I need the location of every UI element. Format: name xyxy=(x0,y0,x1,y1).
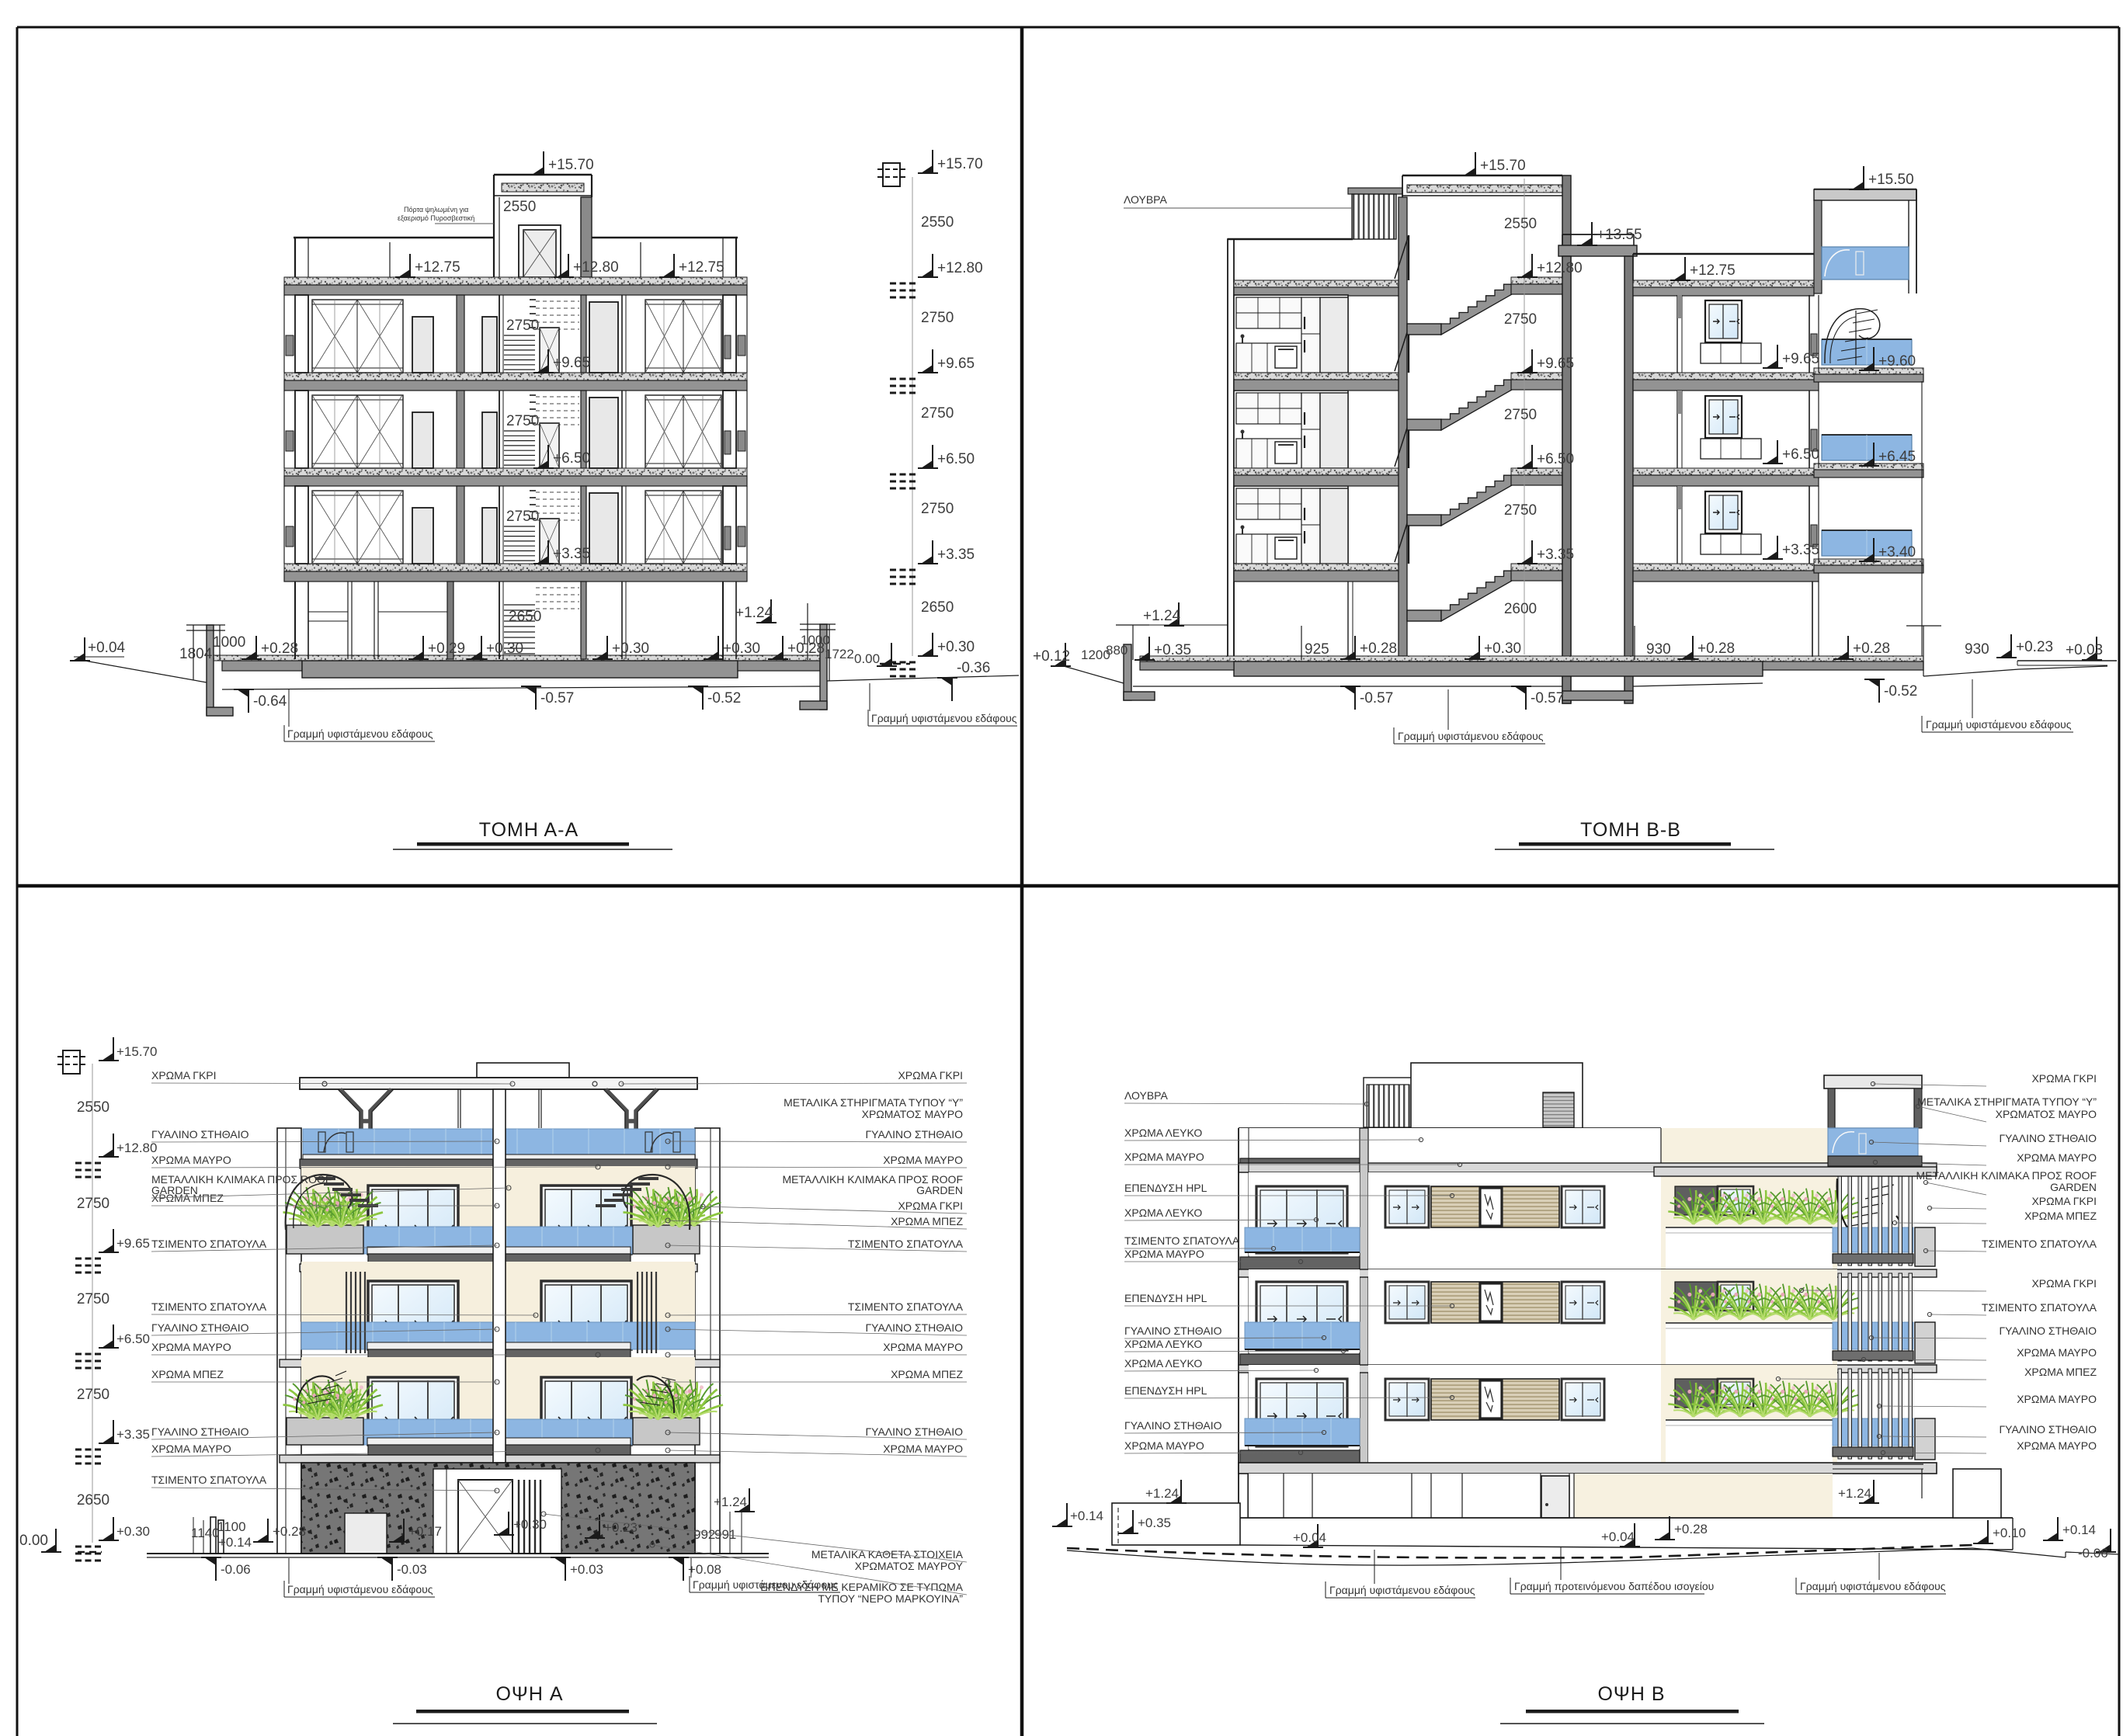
svg-text:1804: 1804 xyxy=(179,646,213,662)
svg-text:-0.57: -0.57 xyxy=(1531,690,1564,707)
svg-text:+0.08: +0.08 xyxy=(688,1562,721,1577)
svg-text:ΜΕΤΑΛΙΚΑ ΣΤΗΡΙΓΜΑΤΑ ΤΥΠΟΥ “Υ”: ΜΕΤΑΛΙΚΑ ΣΤΗΡΙΓΜΑΤΑ ΤΥΠΟΥ “Υ” xyxy=(784,1096,963,1109)
svg-text:ΧΡΩΜΑ ΜΑΥΡΟ: ΧΡΩΜΑ ΜΑΥΡΟ xyxy=(883,1443,963,1455)
svg-text:+0.03: +0.03 xyxy=(570,1562,603,1577)
svg-text:Γραμμή υφιστάμενου εδάφους: Γραμμή υφιστάμενου εδάφους xyxy=(287,1583,433,1595)
svg-text:ΓΥΑΛΙΝΟ ΣΤΗΘΑΙΟ: ΓΥΑΛΙΝΟ ΣΤΗΘΑΙΟ xyxy=(1999,1325,2097,1337)
svg-text:-0.64: -0.64 xyxy=(253,693,287,710)
svg-text:ΧΡΩΜΑ ΜΑΥΡΟ: ΧΡΩΜΑ ΜΑΥΡΟ xyxy=(2017,1151,2097,1164)
svg-text:ΓΥΑΛΙΝΟ ΣΤΗΘΑΙΟ: ΓΥΑΛΙΝΟ ΣΤΗΘΑΙΟ xyxy=(865,1128,963,1141)
svg-text:+1.24: +1.24 xyxy=(714,1495,747,1509)
svg-text:ΕΠΕΝΔΥΣΗ HPL: ΕΠΕΝΔΥΣΗ HPL xyxy=(1124,1292,1207,1304)
svg-text:Πόρτα ψηλωμένη για: Πόρτα ψηλωμένη για xyxy=(404,206,468,214)
svg-text:+0.03: +0.03 xyxy=(2066,642,2103,658)
svg-text:1000: 1000 xyxy=(801,633,830,648)
svg-text:Γραμμή υφιστάμενου εδάφους: Γραμμή υφιστάμενου εδάφους xyxy=(1926,718,2072,731)
svg-text:ΧΡΩΜΑ ΛΕΥΚΟ: ΧΡΩΜΑ ΛΕΥΚΟ xyxy=(1124,1207,1202,1219)
svg-text:ΤΣΙΜΕΝΤΟ ΣΠΑΤΟΥΛΑ: ΤΣΙΜΕΝΤΟ ΣΠΑΤΟΥΛΑ xyxy=(1982,1301,2097,1314)
svg-text:ΧΡΩΜΑ ΛΕΥΚΟ: ΧΡΩΜΑ ΛΕΥΚΟ xyxy=(1124,1357,1202,1370)
svg-text:+1.24: +1.24 xyxy=(1143,608,1181,624)
svg-text:ΕΠΕΝΔΥΣΗ HPL: ΕΠΕΝΔΥΣΗ HPL xyxy=(1124,1384,1207,1397)
svg-text:2750: 2750 xyxy=(1504,311,1537,328)
svg-text:930: 930 xyxy=(1965,641,1989,658)
svg-text:+9.65: +9.65 xyxy=(1537,356,1574,372)
svg-text:GARDEN: GARDEN xyxy=(2050,1181,2097,1193)
svg-text:2750: 2750 xyxy=(77,1196,109,1212)
svg-text:-0.06: -0.06 xyxy=(2078,1546,2108,1561)
svg-text:ΓΥΑΛΙΝΟ ΣΤΗΘΑΙΟ: ΓΥΑΛΙΝΟ ΣΤΗΘΑΙΟ xyxy=(151,1321,249,1334)
svg-text:ΜΕΤΑΛΙΚΑ ΣΤΗΡΙΓΜΑΤΑ ΤΥΠΟΥ “Υ”: ΜΕΤΑΛΙΚΑ ΣΤΗΡΙΓΜΑΤΑ ΤΥΠΟΥ “Υ” xyxy=(1917,1095,2097,1108)
svg-text:ΓΥΑΛΙΝΟ ΣΤΗΘΑΙΟ: ΓΥΑΛΙΝΟ ΣΤΗΘΑΙΟ xyxy=(1124,1419,1222,1432)
svg-text:+0.30: +0.30 xyxy=(116,1524,150,1539)
svg-text:ΛΟΥΒΡΑ: ΛΟΥΒΡΑ xyxy=(1124,193,1167,206)
svg-text:ΧΡΩΜΑ ΜΠΕΖ: ΧΡΩΜΑ ΜΠΕΖ xyxy=(151,1368,224,1380)
svg-text:-0.57: -0.57 xyxy=(1360,690,1393,707)
svg-text:2650: 2650 xyxy=(509,609,541,625)
svg-text:+0.30: +0.30 xyxy=(937,639,975,655)
svg-text:+6.50: +6.50 xyxy=(937,451,975,467)
svg-text:ΧΡΩΜΑ ΜΠΕΖ: ΧΡΩΜΑ ΜΠΕΖ xyxy=(891,1368,963,1380)
svg-text:+3.35: +3.35 xyxy=(1782,542,1819,558)
svg-text:+13.55: +13.55 xyxy=(1597,227,1642,243)
svg-text:ΧΡΩΜΑ ΜΑΥΡΟ: ΧΡΩΜΑ ΜΑΥΡΟ xyxy=(151,1341,231,1353)
svg-text:+15.70: +15.70 xyxy=(1480,158,1526,174)
svg-text:ΧΡΩΜΑΤΟΣ ΜΑΥΡΟ: ΧΡΩΜΑΤΟΣ ΜΑΥΡΟ xyxy=(1996,1108,2097,1120)
svg-text:+12.80: +12.80 xyxy=(937,260,983,276)
svg-text:ΓΥΑΛΙΝΟ ΣΤΗΘΑΙΟ: ΓΥΑΛΙΝΟ ΣΤΗΘΑΙΟ xyxy=(1999,1132,2097,1144)
svg-text:925: 925 xyxy=(1305,641,1329,658)
svg-text:ΧΡΩΜΑ ΜΑΥΡΟ: ΧΡΩΜΑ ΜΑΥΡΟ xyxy=(2017,1439,2097,1452)
svg-text:2650: 2650 xyxy=(921,599,954,616)
svg-text:2750: 2750 xyxy=(921,310,954,326)
svg-text:ΓΥΑΛΙΝΟ ΣΤΗΘΑΙΟ: ΓΥΑΛΙΝΟ ΣΤΗΘΑΙΟ xyxy=(1124,1325,1222,1337)
svg-text:Γραμμή προτεινόμενου δαπέδου ι: Γραμμή προτεινόμενου δαπέδου ισογείου xyxy=(1514,1580,1714,1592)
svg-text:2750: 2750 xyxy=(506,318,539,334)
svg-text:+9.65: +9.65 xyxy=(553,355,590,371)
svg-text:+0.23: +0.23 xyxy=(2016,639,2053,655)
svg-text:1000: 1000 xyxy=(213,634,245,651)
svg-text:-0.57: -0.57 xyxy=(540,690,574,707)
svg-text:2650: 2650 xyxy=(77,1492,109,1509)
svg-text:+0.04: +0.04 xyxy=(1601,1529,1635,1544)
svg-text:ΧΡΩΜΑ ΜΠΕΖ: ΧΡΩΜΑ ΜΠΕΖ xyxy=(2024,1210,2097,1222)
svg-text:+0.28: +0.28 xyxy=(1360,641,1397,657)
svg-text:+0.28: +0.28 xyxy=(1853,641,1890,657)
svg-text:+6.50: +6.50 xyxy=(1537,451,1574,467)
svg-text:ΧΡΩΜΑ ΜΑΥΡΟ: ΧΡΩΜΑ ΜΑΥΡΟ xyxy=(151,1443,231,1455)
svg-text:+6.50: +6.50 xyxy=(116,1332,150,1346)
svg-text:+0.29: +0.29 xyxy=(428,641,465,657)
svg-text:ΓΥΑΛΙΝΟ ΣΤΗΘΑΙΟ: ΓΥΑΛΙΝΟ ΣΤΗΘΑΙΟ xyxy=(865,1321,963,1334)
svg-text:+0.10: +0.10 xyxy=(1993,1526,2026,1540)
svg-text:+6.50: +6.50 xyxy=(553,450,590,467)
svg-text:+0.14: +0.14 xyxy=(1070,1509,1103,1523)
svg-text:0.00: 0.00 xyxy=(19,1533,48,1549)
svg-text:+0.35: +0.35 xyxy=(1154,642,1191,658)
svg-text:εξαερισμό Πυροσβεστική: εξαερισμό Πυροσβεστική xyxy=(398,214,474,222)
svg-text:+9.65: +9.65 xyxy=(1782,351,1819,367)
svg-text:ΧΡΩΜΑ ΓΚΡΙ: ΧΡΩΜΑ ΓΚΡΙ xyxy=(2031,1195,2097,1207)
svg-text:ΤΣΙΜΕΝΤΟ ΣΠΑΤΟΥΛΑ: ΤΣΙΜΕΝΤΟ ΣΠΑΤΟΥΛΑ xyxy=(151,1300,267,1313)
svg-text:+15.70: +15.70 xyxy=(937,156,983,172)
svg-text:ΧΡΩΜΑ ΜΑΥΡΟ: ΧΡΩΜΑ ΜΑΥΡΟ xyxy=(1124,1439,1204,1452)
svg-text:+12.75: +12.75 xyxy=(679,259,724,276)
svg-text:2750: 2750 xyxy=(77,1387,109,1403)
svg-text:ΓΥΑΛΙΝΟ ΣΤΗΘΑΙΟ: ΓΥΑΛΙΝΟ ΣΤΗΘΑΙΟ xyxy=(151,1128,249,1141)
svg-text:+3.35: +3.35 xyxy=(553,546,590,562)
svg-text:TOMH B-B: TOMH B-B xyxy=(1580,819,1681,841)
svg-text:+0.04: +0.04 xyxy=(1293,1530,1326,1545)
svg-text:GARDEN: GARDEN xyxy=(916,1184,963,1196)
svg-text:ΧΡΩΜΑ ΓΚΡΙ: ΧΡΩΜΑ ΓΚΡΙ xyxy=(2031,1072,2097,1085)
svg-text:ΧΡΩΜΑ ΜΑΥΡΟ: ΧΡΩΜΑ ΜΑΥΡΟ xyxy=(1124,1151,1204,1163)
svg-text:ΧΡΩΜΑ ΛΕΥΚΟ: ΧΡΩΜΑ ΛΕΥΚΟ xyxy=(1124,1338,1202,1350)
svg-text:ΓΥΑΛΙΝΟ ΣΤΗΘΑΙΟ: ΓΥΑΛΙΝΟ ΣΤΗΘΑΙΟ xyxy=(151,1425,249,1438)
svg-text:880: 880 xyxy=(1106,643,1128,658)
svg-text:ΧΡΩΜΑ ΛΕΥΚΟ: ΧΡΩΜΑ ΛΕΥΚΟ xyxy=(1124,1127,1202,1139)
svg-text:+0.28: +0.28 xyxy=(273,1524,306,1539)
svg-text:ΧΡΩΜΑΤΟΣ ΜΑΥΡΟ: ΧΡΩΜΑΤΟΣ ΜΑΥΡΟ xyxy=(862,1108,963,1120)
svg-text:2550: 2550 xyxy=(921,214,954,231)
svg-text:+3.40: +3.40 xyxy=(1878,544,1916,561)
svg-text:ΧΡΩΜΑ ΓΚΡΙ: ΧΡΩΜΑ ΓΚΡΙ xyxy=(898,1200,963,1212)
svg-text:+0.35: +0.35 xyxy=(1138,1516,1171,1530)
svg-text:+1.24: +1.24 xyxy=(1145,1486,1179,1501)
svg-text:-0.03: -0.03 xyxy=(397,1562,427,1577)
svg-text:+15.70: +15.70 xyxy=(116,1044,157,1059)
svg-text:+0.14: +0.14 xyxy=(218,1535,252,1550)
svg-text:ΓΥΑΛΙΝΟ ΣΤΗΘΑΙΟ: ΓΥΑΛΙΝΟ ΣΤΗΘΑΙΟ xyxy=(1999,1423,2097,1436)
svg-text:ΜΕΤΑΛΙΚΑ ΚΑΘΕΤΑ ΣΤΟΙΧΕΙΑ: ΜΕΤΑΛΙΚΑ ΚΑΘΕΤΑ ΣΤΟΙΧΕΙΑ xyxy=(811,1548,964,1561)
svg-text:+0.28: +0.28 xyxy=(1697,641,1735,657)
svg-text:2550: 2550 xyxy=(77,1099,109,1116)
svg-text:ΧΡΩΜΑΤΟΣ ΜΑΥΡΟΥ: ΧΡΩΜΑΤΟΣ ΜΑΥΡΟΥ xyxy=(855,1560,964,1572)
svg-text:2750: 2750 xyxy=(1504,502,1537,519)
svg-text:ΧΡΩΜΑ ΜΠΕΖ: ΧΡΩΜΑ ΜΠΕΖ xyxy=(2024,1366,2097,1378)
svg-text:+9.65: +9.65 xyxy=(116,1236,150,1251)
svg-text:Γραμμή υφιστάμενου εδάφους: Γραμμή υφιστάμενου εδάφους xyxy=(1329,1584,1475,1596)
svg-text:ΧΡΩΜΑ ΜΑΥΡΟ: ΧΡΩΜΑ ΜΑΥΡΟ xyxy=(2017,1393,2097,1405)
svg-text:+9.65: +9.65 xyxy=(937,356,975,372)
svg-text:+3.35: +3.35 xyxy=(1537,547,1574,563)
svg-text:2750: 2750 xyxy=(77,1291,109,1307)
svg-text:-0.52: -0.52 xyxy=(707,690,741,707)
svg-text:+3.35: +3.35 xyxy=(116,1427,150,1442)
svg-text:ΤΣΙΜΕΝΤΟ ΣΠΑΤΟΥΛΑ: ΤΣΙΜΕΝΤΟ ΣΠΑΤΟΥΛΑ xyxy=(1982,1238,2097,1250)
svg-text:ΤΣΙΜΕΝΤΟ ΣΠΑΤΟΥΛΑ: ΤΣΙΜΕΝΤΟ ΣΠΑΤΟΥΛΑ xyxy=(1124,1234,1240,1247)
svg-text:ΤΣΙΜΕΝΤΟ ΣΠΑΤΟΥΛΑ: ΤΣΙΜΕΝΤΟ ΣΠΑΤΟΥΛΑ xyxy=(848,1238,964,1250)
svg-text:-0.36: -0.36 xyxy=(957,660,990,676)
svg-text:ΕΠΕΝΔΥΣΗ HPL: ΕΠΕΝΔΥΣΗ HPL xyxy=(1124,1182,1207,1194)
svg-text:+0.17: +0.17 xyxy=(408,1524,442,1539)
svg-text:2750: 2750 xyxy=(921,405,954,422)
svg-text:-0.06: -0.06 xyxy=(221,1562,251,1577)
svg-text:+3.35: +3.35 xyxy=(937,547,975,563)
svg-text:+9.60: +9.60 xyxy=(1878,353,1916,370)
svg-text:ΧΡΩΜΑ ΜΠΕΖ: ΧΡΩΜΑ ΜΠΕΖ xyxy=(891,1215,963,1227)
svg-text:0.00: 0.00 xyxy=(854,651,880,666)
svg-text:+0.14: +0.14 xyxy=(2062,1522,2096,1537)
svg-text:Γραμμή υφιστάμενου εδάφους: Γραμμή υφιστάμενου εδάφους xyxy=(287,727,433,740)
svg-text:ΧΡΩΜΑ ΜΑΥΡΟ: ΧΡΩΜΑ ΜΑΥΡΟ xyxy=(1124,1248,1204,1260)
svg-text:+1.24: +1.24 xyxy=(735,605,773,621)
svg-text:ΕΠΕΝΔΥΣΗ ΜΕ ΚΕΡΑΜΙΚΟ ΣΕ ΤΥΠΩΜΑ: ΕΠΕΝΔΥΣΗ ΜΕ ΚΕΡΑΜΙΚΟ ΣΕ ΤΥΠΩΜΑ xyxy=(760,1581,963,1593)
svg-text:ΓΥΑΛΙΝΟ ΣΤΗΘΑΙΟ: ΓΥΑΛΙΝΟ ΣΤΗΘΑΙΟ xyxy=(865,1425,963,1438)
svg-text:2600: 2600 xyxy=(1504,601,1537,617)
svg-text:ΜΕΤΑΛΛΙΚΗ ΚΛΙΜΑΚΑ ΠΡΟΣ ROOF: ΜΕΤΑΛΛΙΚΗ ΚΛΙΜΑΚΑ ΠΡΟΣ ROOF xyxy=(1916,1169,2097,1182)
svg-text:+15.70: +15.70 xyxy=(548,157,594,173)
svg-text:+0.23: +0.23 xyxy=(604,1520,638,1535)
svg-text:+0.30: +0.30 xyxy=(1484,641,1521,657)
svg-text:+0.30: +0.30 xyxy=(513,1517,547,1532)
svg-text:930: 930 xyxy=(1646,641,1671,658)
svg-text:ΤΥΠΟΥ “ΝΕΡΟ ΜΑΡΚΟΥΙΝΑ”: ΤΥΠΟΥ “ΝΕΡΟ ΜΑΡΚΟΥΙΝΑ” xyxy=(818,1592,963,1605)
svg-text:ΤΣΙΜΕΝΤΟ ΣΠΑΤΟΥΛΑ: ΤΣΙΜΕΝΤΟ ΣΠΑΤΟΥΛΑ xyxy=(151,1474,267,1486)
svg-text:+0.30: +0.30 xyxy=(486,641,523,657)
svg-text:2550: 2550 xyxy=(503,199,536,215)
svg-text:ΛΟΥΒΡΑ: ΛΟΥΒΡΑ xyxy=(1124,1089,1168,1102)
svg-text:Γραμμή υφιστάμενου εδάφους: Γραμμή υφιστάμενου εδάφους xyxy=(871,712,1017,724)
svg-text:2750: 2750 xyxy=(506,413,539,429)
svg-text:+12.75: +12.75 xyxy=(415,259,460,276)
svg-text:2550: 2550 xyxy=(1504,216,1537,232)
svg-text:ΟΨΗ A: ΟΨΗ A xyxy=(495,1683,563,1705)
svg-text:+0.30: +0.30 xyxy=(612,641,649,657)
svg-text:ΧΡΩΜΑ ΜΑΥΡΟ: ΧΡΩΜΑ ΜΑΥΡΟ xyxy=(883,1154,963,1166)
svg-text:2750: 2750 xyxy=(1504,407,1537,423)
svg-text:+12.80: +12.80 xyxy=(573,259,619,276)
svg-text:+15.50: +15.50 xyxy=(1868,172,1914,188)
svg-text:ΧΡΩΜΑ ΓΚΡΙ: ΧΡΩΜΑ ΓΚΡΙ xyxy=(898,1069,963,1082)
svg-text:ΤΣΙΜΕΝΤΟ ΣΠΑΤΟΥΛΑ: ΤΣΙΜΕΝΤΟ ΣΠΑΤΟΥΛΑ xyxy=(151,1238,267,1250)
svg-text:Γραμμή υφιστάμενου εδάφους: Γραμμή υφιστάμενου εδάφους xyxy=(1398,730,1544,742)
svg-text:+12.80: +12.80 xyxy=(1537,260,1583,276)
svg-text:+12.75: +12.75 xyxy=(1690,262,1736,279)
svg-text:ΧΡΩΜΑ ΜΑΥΡΟ: ΧΡΩΜΑ ΜΑΥΡΟ xyxy=(2017,1346,2097,1359)
svg-text:ΤΣΙΜΕΝΤΟ ΣΠΑΤΟΥΛΑ: ΤΣΙΜΕΝΤΟ ΣΠΑΤΟΥΛΑ xyxy=(848,1300,964,1313)
svg-text:ΧΡΩΜΑ ΓΚΡΙ: ΧΡΩΜΑ ΓΚΡΙ xyxy=(151,1069,217,1082)
svg-text:+1.24: +1.24 xyxy=(1838,1486,1871,1501)
svg-text:ΧΡΩΜΑ ΜΑΥΡΟ: ΧΡΩΜΑ ΜΑΥΡΟ xyxy=(151,1154,231,1166)
svg-text:1100: 1100 xyxy=(217,1519,246,1534)
svg-text:Γραμμή υφιστάμενου εδάφους: Γραμμή υφιστάμενου εδάφους xyxy=(1800,1580,1946,1592)
svg-text:ΧΡΩΜΑ ΓΚΡΙ: ΧΡΩΜΑ ΓΚΡΙ xyxy=(2031,1277,2097,1290)
svg-text:ΧΡΩΜΑ ΜΑΥΡΟ: ΧΡΩΜΑ ΜΑΥΡΟ xyxy=(883,1341,963,1353)
svg-text:1140: 1140 xyxy=(191,1526,220,1540)
svg-text:+0.28: +0.28 xyxy=(261,641,298,657)
svg-text:+6.50: +6.50 xyxy=(1782,446,1819,463)
svg-text:2750: 2750 xyxy=(921,501,954,517)
svg-text:+0.12: +0.12 xyxy=(1033,648,1070,665)
svg-text:-0.52: -0.52 xyxy=(1884,683,1917,700)
svg-text:ΟΨΗ B: ΟΨΗ B xyxy=(1597,1683,1665,1705)
svg-text:+6.45: +6.45 xyxy=(1878,449,1916,465)
svg-text:+0.04: +0.04 xyxy=(88,640,126,656)
svg-text:2750: 2750 xyxy=(506,509,539,525)
svg-text:+0.28: +0.28 xyxy=(1674,1522,1708,1536)
svg-text:TOMH A-A: TOMH A-A xyxy=(479,819,579,841)
svg-text:+0.30: +0.30 xyxy=(723,641,760,657)
svg-text:992: 992 xyxy=(693,1527,715,1542)
